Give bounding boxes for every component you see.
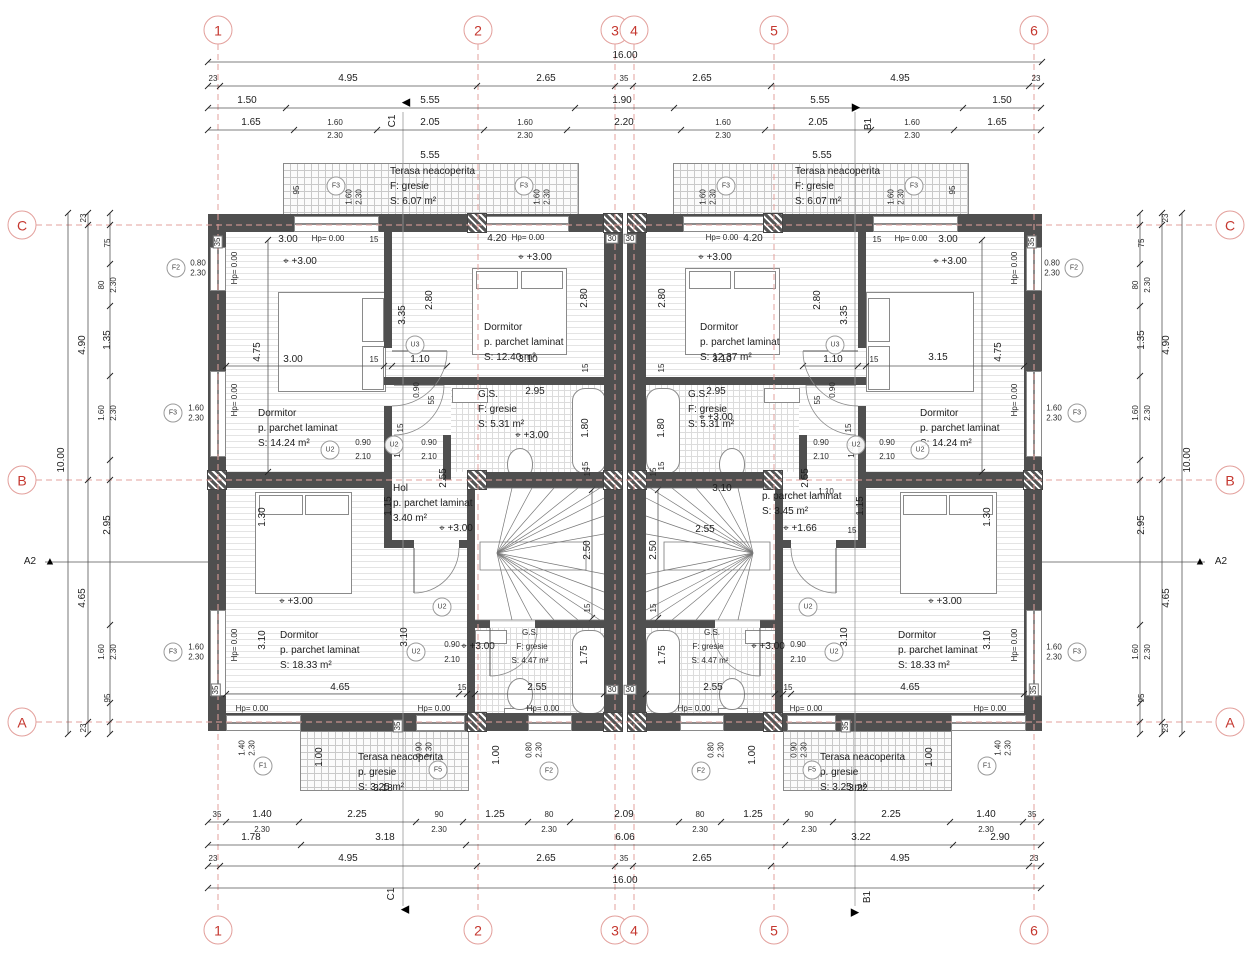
dimension-label: 4.90 — [1161, 335, 1173, 354]
elevation-marker: ⌖ +3.00 — [933, 256, 967, 268]
dimension-label: 2.80 — [657, 288, 669, 307]
elevation-marker: ⌖ +3.00 — [283, 256, 317, 268]
dimension-label: 23 — [79, 724, 89, 733]
level-label: Hp= 0.00 — [312, 234, 345, 244]
dimension-label: 35 — [620, 854, 629, 864]
dimension-label: 90 — [435, 810, 444, 820]
room-label: F: gresie — [516, 642, 547, 652]
dimension-label: 75 — [103, 239, 113, 248]
window-marker-F5: F5 — [803, 761, 822, 780]
section-marker: ◀ — [402, 96, 410, 109]
dimension-label: 2.30 — [109, 277, 119, 293]
room-label: G.S. — [522, 628, 538, 638]
dimension-label: 2.30 — [109, 405, 119, 421]
window-marker-F3: F3 — [164, 643, 183, 662]
dimension-label: 2.80 — [812, 290, 824, 309]
dimension-label: 4.20 — [487, 233, 506, 245]
dimension-label: 2.55 — [438, 468, 450, 487]
section-marker: ◀ — [401, 903, 409, 916]
dimension-label: 30 — [625, 235, 636, 243]
dimension-label: 2.30 — [517, 131, 533, 141]
level-label: Hp= 0.00 — [527, 704, 560, 714]
dimension-label: 1.15 — [855, 496, 867, 515]
dimension-label: 15 — [657, 364, 667, 373]
dimension-label: 0.80 2.30 — [706, 742, 725, 758]
dimension-label: 2.55 — [703, 682, 722, 694]
dimension-label: 3.00 — [278, 234, 297, 246]
grid-bubble-B: B — [1216, 466, 1245, 495]
grid-bubble-C: C — [8, 211, 37, 240]
dimension-label: 2.95 — [1136, 515, 1148, 534]
dimension-label: 2.90 — [990, 832, 1009, 844]
dimension-label: 1.25 — [743, 809, 762, 821]
grid-bubble-5: 5 — [760, 916, 789, 945]
dimension-label: 2.05 — [808, 117, 827, 129]
dimension-label: 0.90 — [879, 438, 895, 448]
dimension-label: 4.95 — [890, 73, 909, 85]
dimension-label: 3.35 — [839, 305, 851, 324]
dimension-label: 2.50 — [582, 540, 594, 559]
grid-bubble-4: 4 — [620, 16, 649, 45]
dimension-label: 0.90 — [790, 640, 806, 650]
door-marker-U2: U2 — [799, 598, 818, 617]
dimension-label: 3.00 — [938, 234, 957, 246]
dimension-label: 2.65 — [692, 73, 711, 85]
dimension-label: S: 4.47 m² — [512, 656, 549, 666]
dimension-label: 2.30 — [801, 825, 817, 835]
dimension-label: 2.30 — [1143, 644, 1153, 660]
dimension-label: 1.30 — [982, 507, 994, 526]
room-label: F: gresie — [692, 642, 723, 652]
dimension-label: 1.90 — [612, 95, 631, 107]
dimension-label: 1.00 — [314, 747, 326, 766]
dimension-label: 2.25 — [347, 809, 366, 821]
elevation-marker: ⌖ +1.66 — [783, 523, 817, 535]
grid-bubble-2: 2 — [464, 916, 493, 945]
window-marker-F1: F1 — [254, 757, 273, 776]
dimension-label: 80 — [545, 810, 554, 820]
dimension-label: 0.90 2.30 — [414, 742, 433, 758]
dimension-label: 3.10 — [257, 630, 269, 649]
dimension-label: 0.90 — [421, 438, 437, 448]
dimension-label: 2.95 — [525, 386, 544, 398]
dimension-label: 1.60 — [715, 118, 731, 128]
dimension-label: 1.15 — [383, 496, 395, 515]
dimension-label: 35 — [620, 74, 629, 84]
dimension-label: 55 — [813, 396, 823, 405]
dimension-label: 2.55 — [527, 682, 546, 694]
dimension-label: 15 — [870, 355, 879, 365]
dimension-label: 1.80 — [656, 418, 668, 437]
section-marker: B1 — [863, 118, 875, 130]
grid-bubble-A: A — [8, 708, 37, 737]
dimension-label: 35 — [214, 237, 222, 248]
window-marker-F3: F3 — [905, 177, 924, 196]
dimension-label: 55 — [427, 396, 437, 405]
dimension-label: 95 — [948, 186, 958, 195]
dimension-label: 1.60 2.30 — [188, 642, 204, 661]
dimension-label: 4.95 — [890, 853, 909, 865]
floor-plan-canvas: 16.00234.952.65352.654.95231.505.551.905… — [0, 0, 1255, 960]
dimension-label: 15 — [370, 235, 379, 245]
window-marker-F2: F2 — [540, 762, 559, 781]
window-marker-F3: F3 — [717, 177, 736, 196]
dimension-label: 3.18 — [373, 783, 392, 795]
dimension-label: 4.75 — [252, 342, 264, 361]
room-label: Terasa neacoperita F: gresie S: 6.07 m² — [390, 164, 475, 209]
room-label: Dormitor p. parchet laminat S: 18.33 m² — [898, 628, 978, 673]
dimension-label: 4.20 — [743, 233, 762, 245]
elevation-marker: ⌖ +3.00 — [279, 596, 313, 608]
dimension-label: 4.95 — [338, 853, 357, 865]
dimension-label: 2.65 — [536, 73, 555, 85]
dimension-label: 30 — [607, 235, 618, 243]
door-marker-U2: U2 — [321, 441, 340, 460]
dimension-label: 1.60 — [1131, 644, 1141, 660]
level-label: Hp= 0.00 — [974, 704, 1007, 714]
dimension-label: 23 — [209, 74, 218, 84]
section-marker: ▲ — [1195, 555, 1206, 568]
dimension-label: 15 — [873, 235, 882, 245]
dimension-label: 2.05 — [420, 117, 439, 129]
dimension-label: 2.20 — [614, 117, 633, 129]
window-marker-F3: F3 — [327, 177, 346, 196]
elevation-marker: ⌖ +3.00 — [751, 641, 785, 653]
dimension-label: 2.10 — [355, 452, 371, 462]
dimension-label: 1.60 2.30 — [1046, 642, 1062, 661]
dimension-label: 1.35 — [1136, 330, 1148, 349]
level-label: Hp= 0.00 — [230, 629, 240, 662]
dimension-label: 2.55 — [800, 468, 812, 487]
dimension-label: 1.40 — [976, 809, 995, 821]
dimension-label: 80 — [97, 281, 107, 290]
dimension-label: 95 — [103, 694, 113, 703]
dimension-label: 23 — [1032, 74, 1041, 84]
dimension-label: 15 — [396, 424, 406, 433]
dimension-label: 1.10 — [823, 354, 842, 366]
dimension-label: 1.35 — [102, 330, 114, 349]
dimension-label: 4.65 — [330, 682, 349, 694]
elevation-marker: ⌖ +3.00 — [928, 596, 962, 608]
dimension-label: 23 — [1161, 214, 1171, 223]
grid-bubble-A: A — [1216, 708, 1245, 737]
dimension-label: 1.60 — [517, 118, 533, 128]
dimension-label: 4.65 — [900, 682, 919, 694]
dimension-label: 16.00 — [612, 875, 637, 887]
window-marker-F5: F5 — [429, 761, 448, 780]
dimension-label: 2.50 — [648, 540, 660, 559]
dimension-label: 1.00 — [747, 745, 759, 764]
dimension-label: 15 — [844, 424, 854, 433]
dimension-label: 2.65 — [536, 853, 555, 865]
dimension-label: 35 — [1030, 685, 1038, 696]
room-label: G.S. — [704, 628, 720, 638]
level-label: Hp= 0.00 — [1010, 252, 1020, 285]
dimension-label: 15 — [848, 526, 857, 536]
dimension-label: 15 — [583, 604, 593, 613]
window-marker-F2: F2 — [167, 259, 186, 278]
grid-bubble-6: 6 — [1020, 16, 1049, 45]
dimension-label: 2.10 — [421, 452, 437, 462]
dimension-label: 23 — [79, 214, 89, 223]
dimension-label: 1.25 — [485, 809, 504, 821]
window-marker-F3: F3 — [164, 404, 183, 423]
level-label: Hp= 0.00 — [678, 704, 711, 714]
dimension-label: 2.30 — [1143, 405, 1153, 421]
dimension-label: 1.80 — [580, 418, 592, 437]
elevation-marker: ⌖ +3.00 — [698, 252, 732, 264]
dimension-label: 2.55 — [695, 524, 714, 536]
dimension-label: 15 — [649, 604, 659, 613]
section-marker: C1 — [387, 115, 399, 128]
elevation-marker: ⌖ +3.00 — [439, 523, 473, 535]
door-marker-U2: U2 — [825, 643, 844, 662]
dimension-label: 30 — [607, 686, 618, 694]
dimension-label: 1.00 — [491, 745, 503, 764]
dimension-label: 2.10 — [879, 452, 895, 462]
dimension-label: 95 — [1137, 694, 1147, 703]
dimension-label: 1.60 2.30 — [344, 189, 363, 205]
window-marker-F2: F2 — [1065, 259, 1084, 278]
dimension-label: 4.75 — [993, 342, 1005, 361]
dimension-label: 1.60 2.30 — [532, 189, 551, 205]
dimension-label: 4.65 — [1161, 588, 1173, 607]
grid-bubble-5: 5 — [760, 16, 789, 45]
grid-bubble-6: 6 — [1020, 916, 1049, 945]
dimension-label: 35 — [213, 810, 222, 820]
dimension-label: 2.30 — [431, 825, 447, 835]
dimension-label: 5.55 — [420, 95, 439, 107]
dimension-label: 3.18 — [375, 832, 394, 844]
dimension-label: 2.30 — [692, 825, 708, 835]
level-label: Hp= 0.00 — [230, 384, 240, 417]
dimension-label: 2.09 — [614, 809, 633, 821]
room-label: G.S. F: gresie S: 5.31 m² — [478, 387, 524, 432]
dimension-label: 1.50 — [992, 95, 1011, 107]
dimension-label: 1.78 — [241, 832, 260, 844]
dimension-label: 1.10 — [818, 487, 834, 497]
dimension-label: 1.60 2.30 — [886, 189, 905, 205]
window-marker-F1: F1 — [978, 757, 997, 776]
dimension-label: 30 — [625, 686, 636, 694]
dimension-label: 3.10 — [712, 483, 731, 495]
elevation-marker: ⌖ +3.00 — [518, 252, 552, 264]
section-marker: ▲ — [45, 555, 56, 568]
dimension-label: 23 — [209, 854, 218, 864]
dimension-label: 1.00 — [924, 747, 936, 766]
dimension-label: 80 — [1131, 281, 1141, 290]
dimension-label: S: 4.47 m² — [692, 656, 729, 666]
door-marker-U2: U2 — [407, 643, 426, 662]
elevation-marker: ⌖ +3.00 — [699, 412, 733, 424]
grid-bubble-C: C — [1216, 211, 1245, 240]
dimension-label: 1.30 — [257, 507, 269, 526]
dimension-label: 15 — [784, 683, 793, 693]
dimension-label: 1.10 — [410, 354, 429, 366]
door-marker-U3: U3 — [826, 336, 845, 355]
dimension-label: 1.65 — [987, 117, 1006, 129]
dimension-label: 4.65 — [77, 588, 89, 607]
dimension-label: 23 — [1030, 854, 1039, 864]
door-marker-U2: U2 — [911, 441, 930, 460]
dimension-label: 15 — [370, 355, 379, 365]
dimension-label: 3.22 — [848, 783, 867, 795]
level-label: Hp= 0.00 — [418, 704, 451, 714]
window-marker-F3: F3 — [1068, 643, 1087, 662]
dimension-label: 3.35 — [397, 305, 409, 324]
dimension-label: 95 — [292, 186, 302, 195]
dimension-label: 0.80 2.30 — [524, 742, 543, 758]
section-marker: A2 — [1215, 556, 1227, 568]
door-marker-U3: U3 — [406, 336, 425, 355]
dimension-label: 2.30 — [541, 825, 557, 835]
dimension-label: 4.90 — [77, 335, 89, 354]
dimension-label: 3.00 — [283, 354, 302, 366]
dimension-label: 1.60 2.30 — [1046, 403, 1062, 422]
dimension-label: 35 — [394, 721, 402, 732]
dimension-label: 1.60 — [97, 405, 107, 421]
dimension-label: 3.22 — [851, 832, 870, 844]
dimension-label: 1.60 — [97, 644, 107, 660]
grid-bubble-1: 1 — [204, 16, 233, 45]
room-label: Dormitor p. parchet laminat S: 18.33 m² — [280, 628, 360, 673]
dimension-label: 5.55 — [812, 150, 831, 162]
dimension-label: 2.30 — [1143, 277, 1153, 293]
section-marker: ▶ — [851, 906, 859, 919]
dimension-label: 1.40 2.30 — [237, 740, 256, 756]
dimension-label: 3.15 — [928, 352, 947, 364]
dimension-label: 2.95 — [102, 515, 114, 534]
level-label: Hp= 0.00 — [512, 233, 545, 243]
grid-bubble-B: B — [8, 466, 37, 495]
room-label: Terasa neacoperita F: gresie S: 6.07 m² — [795, 164, 880, 209]
dimension-label: 15 — [581, 364, 591, 373]
dimension-label: 0.90 — [444, 640, 460, 650]
dimension-label: 2.95 — [706, 386, 725, 398]
dimension-label: 6.06 — [615, 832, 634, 844]
room-label: Dormitor p. parchet laminat S: 12.40 m² — [484, 320, 564, 365]
dimension-label: 1.50 — [237, 95, 256, 107]
section-marker: B1 — [862, 891, 874, 903]
level-label: Hp= 0.00 — [790, 704, 823, 714]
dimension-label: 23 — [1161, 724, 1171, 733]
dimension-label: 10.00 — [1182, 447, 1194, 472]
dimension-label: 1.60 — [327, 118, 343, 128]
door-marker-U2: U2 — [385, 436, 404, 455]
dimension-label: 1.60 — [1131, 405, 1141, 421]
dimension-label: 10.00 — [56, 447, 68, 472]
dimension-label: 1.40 — [252, 809, 271, 821]
dimension-label: 4.95 — [338, 73, 357, 85]
dimension-label: 15 — [649, 468, 659, 477]
dimension-label: 3.10 — [839, 627, 851, 646]
door-marker-U2: U2 — [433, 598, 452, 617]
level-label: Hp= 0.00 — [1010, 629, 1020, 662]
dimension-label: 80 — [696, 810, 705, 820]
room-label: Dormitor p. parchet laminat S: 12.37 m² — [700, 320, 780, 365]
dimension-label: 0.90 — [828, 382, 838, 398]
level-label: Hp= 0.00 — [895, 234, 928, 244]
dimension-label: 3.10 — [982, 630, 994, 649]
level-label: Hp= 0.00 — [230, 252, 240, 285]
grid-bubble-2: 2 — [464, 16, 493, 45]
dimension-label: 0.80 2.30 — [1044, 258, 1060, 277]
dimension-label: 0.80 2.30 — [190, 258, 206, 277]
section-marker: A2 — [24, 556, 36, 568]
dimension-label: 35 — [212, 685, 220, 696]
dimension-label: 90 — [805, 810, 814, 820]
dimension-label: 2.10 — [813, 452, 829, 462]
window-marker-F3: F3 — [515, 177, 534, 196]
elevation-marker: ⌖ +3.00 — [515, 430, 549, 442]
grid-bubble-1: 1 — [204, 916, 233, 945]
dimension-label: 0.90 — [355, 438, 371, 448]
dimension-label: 2.80 — [424, 290, 436, 309]
dimension-label: 1.60 — [904, 118, 920, 128]
dimension-label: 5.55 — [810, 95, 829, 107]
dimension-label: 2.30 — [715, 131, 731, 141]
grid-bubble-4: 4 — [620, 916, 649, 945]
dimension-label: 35 — [1028, 237, 1036, 248]
dimension-label: 0.90 — [412, 382, 422, 398]
window-marker-F2: F2 — [692, 762, 711, 781]
dimension-label: 2.30 — [327, 131, 343, 141]
dimension-label: 2.80 — [579, 288, 591, 307]
room-label: Hol p. parchet laminat 3.40 m² — [393, 481, 473, 526]
level-label: Hp= 0.00 — [706, 233, 739, 243]
dimension-label: 1.60 2.30 — [188, 403, 204, 422]
dimension-label: 15 — [458, 683, 467, 693]
section-marker: C1 — [386, 888, 398, 901]
dimension-label: 1.40 2.30 — [993, 740, 1012, 756]
dimension-label: 2.10 — [790, 655, 806, 665]
elevation-marker: ⌖ +3.00 — [461, 641, 495, 653]
dimension-label: 35 — [842, 721, 850, 732]
room-label: Dormitor p. parchet laminat S: 14.24 m² — [920, 406, 1000, 451]
dimension-label: 1.65 — [241, 117, 260, 129]
dimension-label: 2.65 — [692, 853, 711, 865]
dimension-label: 1.60 2.30 — [698, 189, 717, 205]
dimension-label: 5.55 — [420, 150, 439, 162]
dimension-label: 15 — [583, 468, 593, 477]
level-label: Hp= 0.00 — [1010, 384, 1020, 417]
dimension-label: 16.00 — [612, 50, 637, 62]
dimension-label: 2.30 — [109, 644, 119, 660]
section-marker: ▶ — [852, 101, 860, 114]
dimension-label: 2.10 — [444, 655, 460, 665]
level-label: Hp= 0.00 — [236, 704, 269, 714]
dimension-label: 2.25 — [881, 809, 900, 821]
dimension-label: 2.30 — [904, 131, 920, 141]
dimension-label: 1.75 — [657, 645, 669, 664]
dimension-label: 1.75 — [579, 645, 591, 664]
window-marker-F3: F3 — [1068, 404, 1087, 423]
door-marker-U2: U2 — [847, 436, 866, 455]
dimension-label: 35 — [1028, 810, 1037, 820]
dimension-label: 0.90 2.30 — [789, 742, 808, 758]
dimension-label: 75 — [1137, 239, 1147, 248]
dimension-label: 0.90 — [813, 438, 829, 448]
